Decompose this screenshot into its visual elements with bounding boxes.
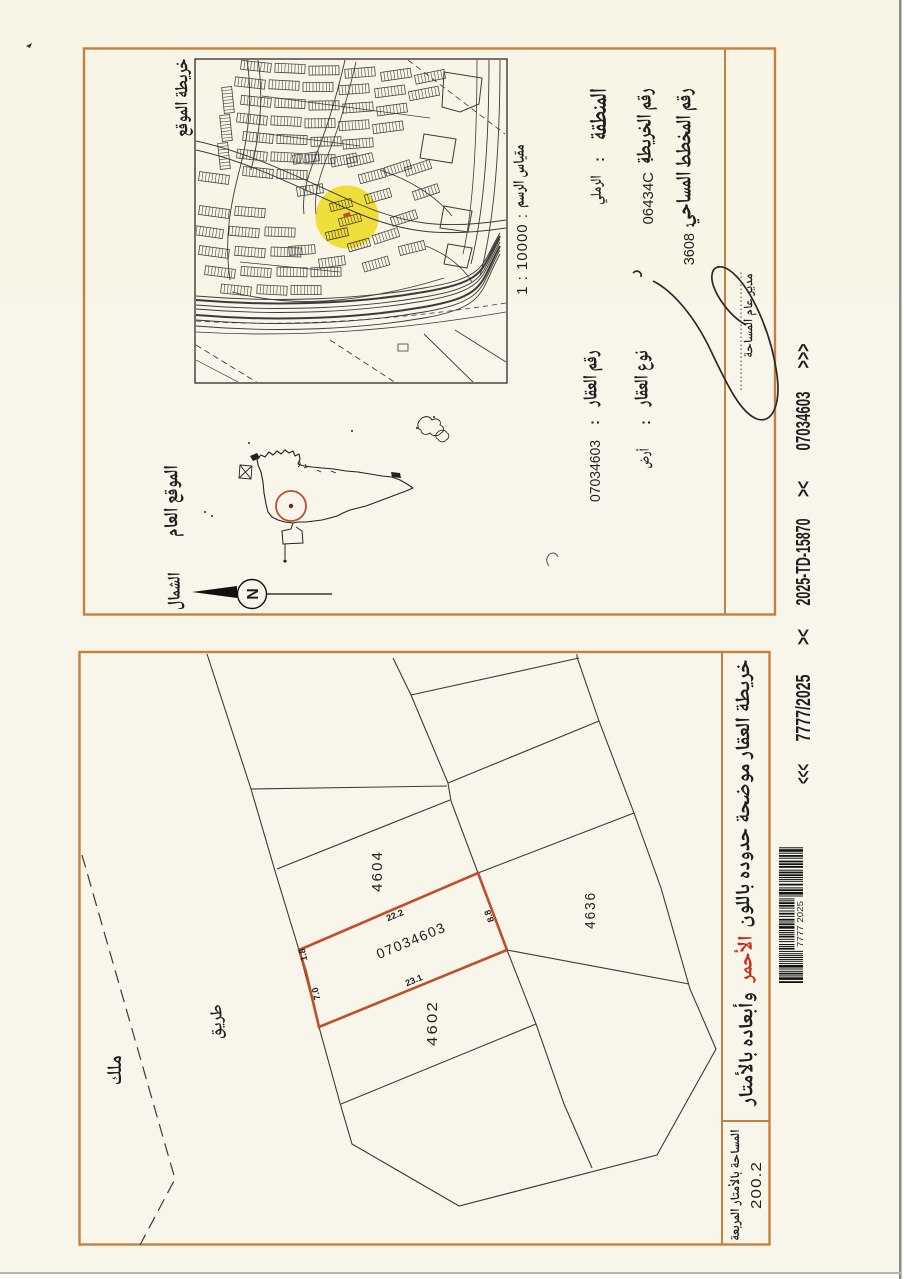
svg-text::: : — [586, 420, 603, 425]
svg-text:>>>: >>> — [793, 344, 815, 369]
svg-text:<<<: <<< — [793, 764, 815, 784]
svg-text:200.2: 200.2 — [748, 1161, 765, 1209]
svg-text:4636: 4636 — [582, 891, 599, 929]
svg-text:4604: 4604 — [369, 850, 386, 892]
svg-text::: : — [637, 420, 654, 425]
svg-text:07034603: 07034603 — [793, 392, 815, 451]
svg-text:07034603: 07034603 — [587, 440, 604, 502]
svg-text:7777 2025: 7777 2025 — [796, 900, 805, 947]
svg-text::: : — [681, 223, 698, 228]
svg-text:N: N — [245, 588, 262, 600]
svg-text:1 : 10000 :: 1 : 10000 : — [514, 213, 531, 295]
svg-text:06434C: 06434C — [640, 172, 657, 225]
svg-text:><: >< — [793, 629, 815, 645]
svg-text:><: >< — [793, 481, 815, 497]
svg-text:7777/2025: 7777/2025 — [793, 675, 815, 742]
svg-text:2025-TD-15870: 2025-TD-15870 — [793, 519, 815, 606]
svg-text:4602: 4602 — [424, 1000, 441, 1046]
svg-text::: : — [640, 157, 657, 162]
svg-text:3608: 3608 — [682, 233, 698, 265]
svg-text::: : — [591, 157, 608, 162]
